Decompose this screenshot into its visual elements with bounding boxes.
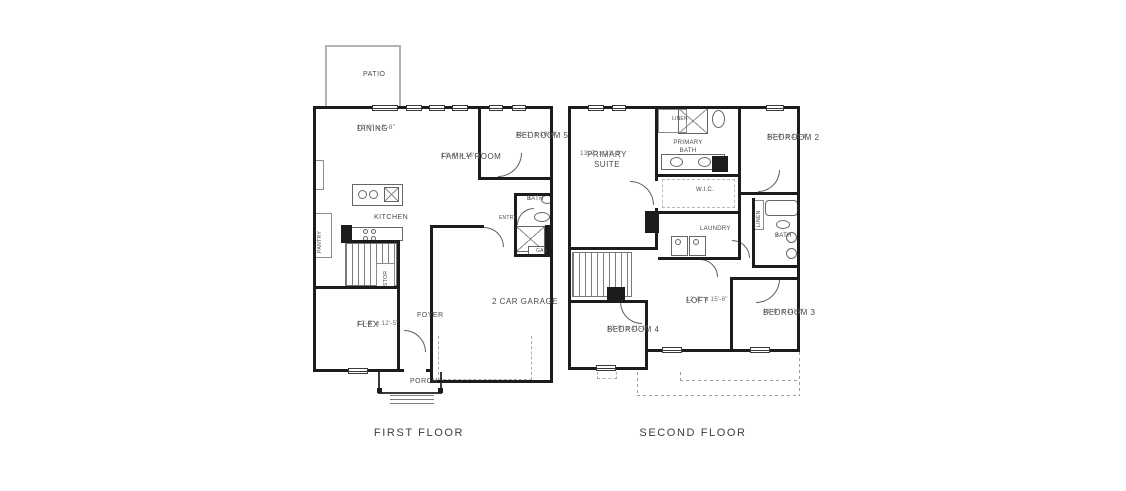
door-arc bbox=[756, 279, 780, 303]
window bbox=[612, 105, 626, 111]
roof-outline bbox=[799, 352, 800, 396]
wall bbox=[514, 193, 517, 257]
roof-outline bbox=[680, 380, 799, 381]
porch-steps bbox=[390, 395, 434, 404]
window bbox=[662, 347, 682, 353]
dryer-dial bbox=[693, 239, 699, 245]
wall bbox=[430, 225, 484, 228]
wall bbox=[655, 106, 658, 181]
wall-chase bbox=[712, 156, 728, 172]
wall bbox=[658, 174, 740, 177]
wall bbox=[430, 380, 553, 383]
wall bbox=[752, 198, 755, 268]
toilet bbox=[776, 220, 790, 229]
second-floor-plan: PRIMARY SUITE 13'-7" x 21'-3" LINEN PRIM… bbox=[0, 0, 1126, 491]
room-label-linen2: LINEN bbox=[756, 203, 762, 227]
kitchen-sink bbox=[384, 187, 399, 202]
wall-chase bbox=[341, 225, 352, 243]
wall-chase bbox=[607, 287, 625, 301]
window bbox=[429, 105, 445, 111]
bathroom-sink bbox=[786, 248, 797, 259]
stove-burner bbox=[363, 229, 368, 234]
washer-dial bbox=[675, 239, 681, 245]
bathroom-sink bbox=[698, 157, 711, 167]
roof-outline bbox=[637, 372, 638, 396]
door-arc bbox=[700, 259, 718, 277]
floor-plan-sheet: PATIO bbox=[0, 0, 1126, 491]
bathroom-sink bbox=[670, 157, 683, 167]
wall bbox=[730, 277, 800, 280]
roof-outline bbox=[597, 372, 617, 379]
roof-outline bbox=[637, 395, 800, 396]
caption-second-floor: SECOND FLOOR bbox=[639, 427, 746, 439]
wall bbox=[313, 106, 316, 372]
wall bbox=[313, 286, 400, 289]
wall bbox=[430, 225, 433, 383]
window bbox=[452, 105, 468, 111]
bathtub bbox=[765, 200, 798, 216]
window bbox=[489, 105, 503, 111]
window bbox=[766, 105, 784, 111]
toilet bbox=[534, 212, 550, 222]
wall bbox=[730, 277, 733, 352]
toilet bbox=[712, 110, 725, 128]
wall bbox=[568, 247, 658, 250]
window bbox=[596, 365, 616, 371]
wall bbox=[738, 195, 741, 260]
wall bbox=[738, 106, 741, 195]
wall-chase bbox=[645, 211, 659, 233]
room-label-pantry: PANTRY bbox=[317, 221, 323, 253]
wall bbox=[568, 106, 571, 370]
wall bbox=[738, 192, 800, 195]
door-arc bbox=[758, 170, 780, 192]
window bbox=[372, 105, 398, 111]
stove-burner bbox=[371, 229, 376, 234]
wall bbox=[478, 106, 481, 180]
room-label-storage: STOR bbox=[383, 265, 389, 286]
door-arc bbox=[732, 240, 750, 258]
window bbox=[406, 105, 422, 111]
wall bbox=[658, 211, 740, 214]
door-arc bbox=[620, 302, 642, 324]
wall bbox=[658, 257, 740, 260]
window bbox=[512, 105, 526, 111]
sink-basin bbox=[358, 190, 367, 199]
wall bbox=[752, 265, 800, 268]
sink-basin bbox=[369, 190, 378, 199]
wall bbox=[478, 177, 553, 180]
window bbox=[750, 347, 770, 353]
door-arc bbox=[630, 181, 654, 205]
wall bbox=[397, 240, 400, 372]
porch-post bbox=[438, 388, 443, 393]
porch-post bbox=[377, 388, 382, 393]
caption-first-floor: FIRST FLOOR bbox=[374, 427, 464, 439]
window bbox=[588, 105, 604, 111]
window bbox=[348, 368, 368, 374]
